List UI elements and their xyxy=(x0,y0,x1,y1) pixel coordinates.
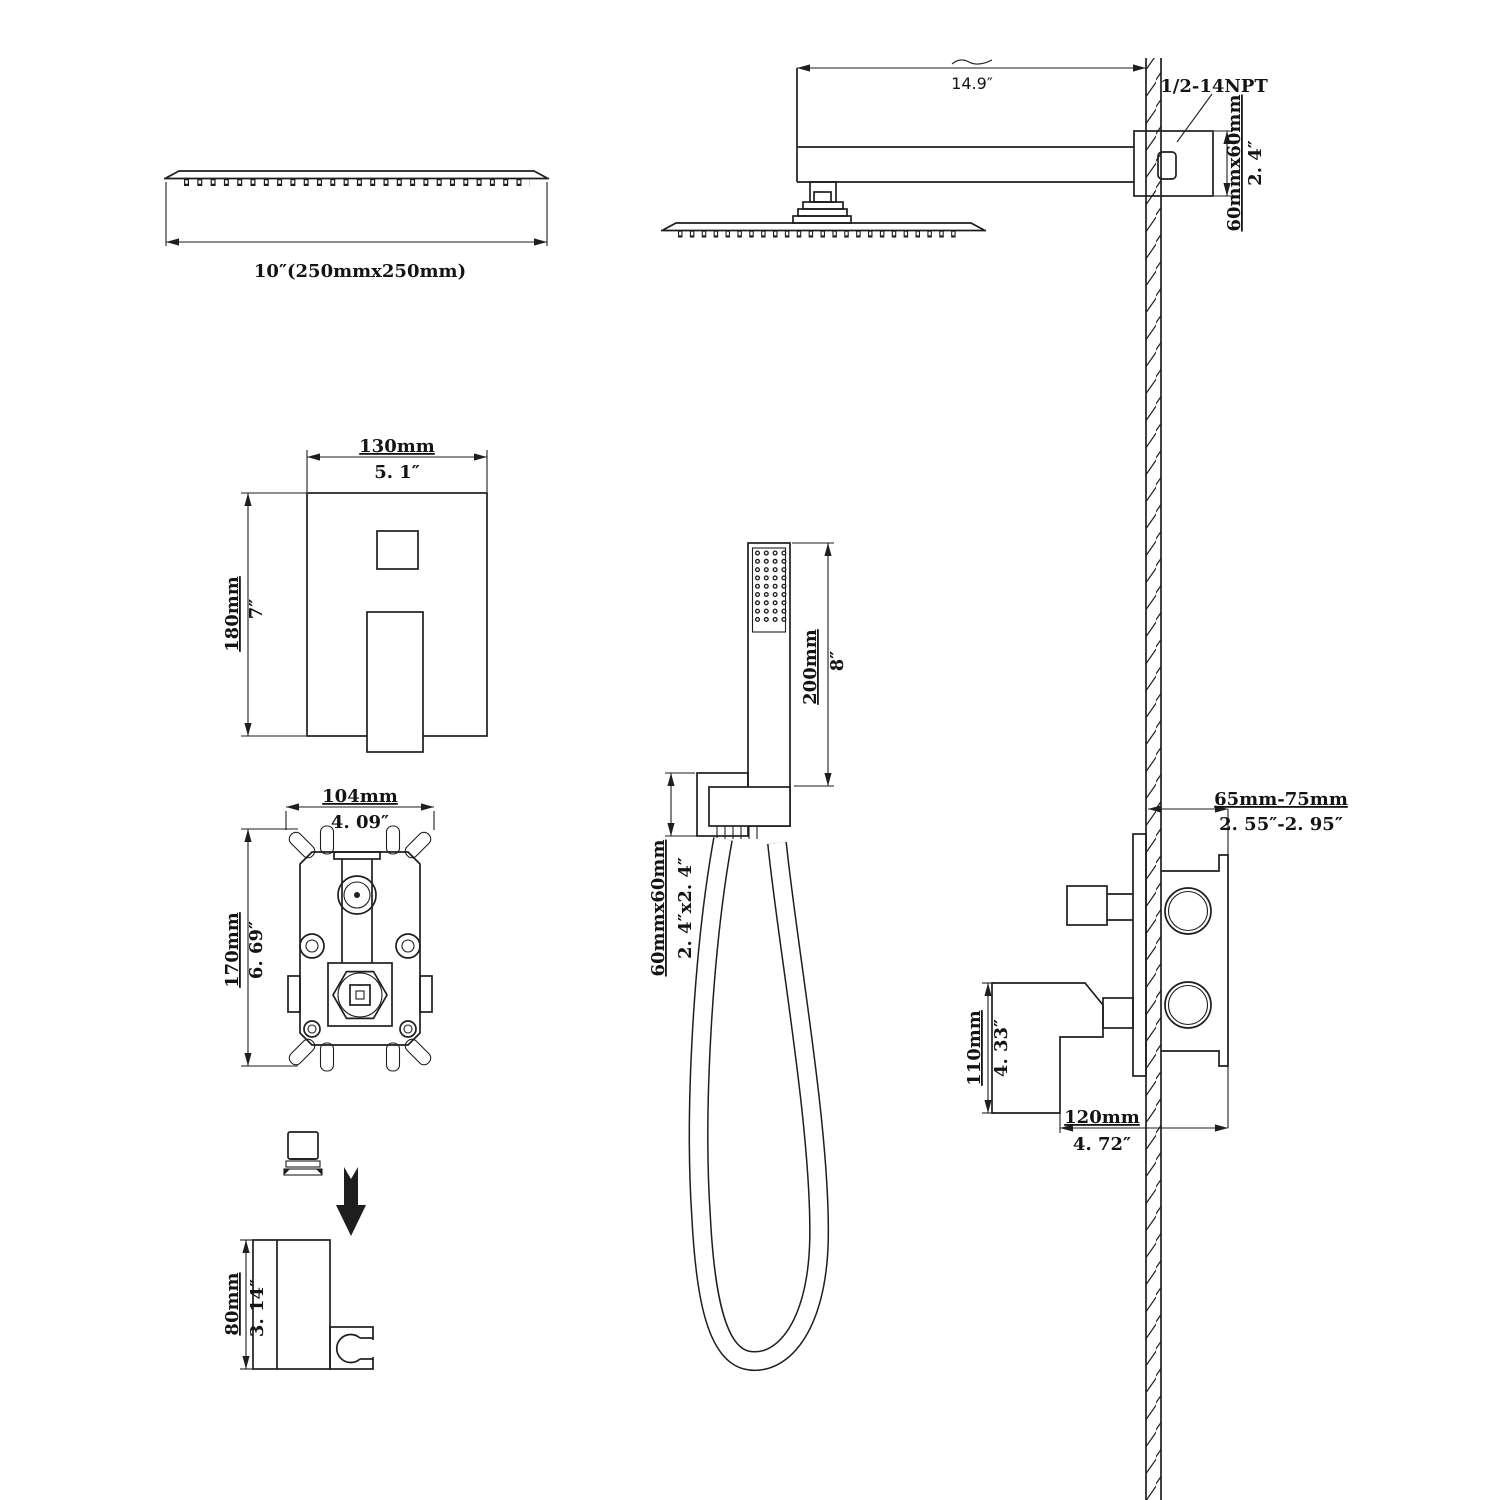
plate-width-in-label: 5. 1″ xyxy=(374,462,420,483)
shower-head-connector xyxy=(793,182,851,223)
holder-block xyxy=(709,787,790,826)
thread-leader-line xyxy=(1177,94,1212,142)
diverter-window xyxy=(377,531,418,569)
mounting-tab-br xyxy=(403,1037,433,1067)
flange-size-mm-label: 60mmx60mm xyxy=(1224,94,1245,231)
wand-length-in-label: 8″ xyxy=(827,651,848,672)
wand-nozzle-grid xyxy=(758,553,784,627)
wand-length-mm-label: 200mm xyxy=(800,629,821,705)
handle-depth-in-label: 4. 72″ xyxy=(1073,1134,1131,1155)
trim-plate-side xyxy=(1133,834,1146,1076)
plate-width-mm-label: 130mm xyxy=(359,436,435,457)
screw-hole-bottom-left xyxy=(304,1021,320,1037)
wall-depth-mm-label: 65mm-75mm xyxy=(1214,789,1348,810)
figure-trim-plate-front: 130mm 5. 1″ 180mm 7″ xyxy=(222,436,487,752)
valve-height-mm-label: 170mm xyxy=(222,912,243,988)
plug-ridge-1 xyxy=(286,1161,320,1167)
plug-ridge-2 xyxy=(284,1169,322,1175)
screw-hole-mid-right xyxy=(396,934,420,958)
valve-body-side-outline xyxy=(1161,855,1228,1066)
hose-plug-cap xyxy=(288,1132,318,1159)
valve-side-tab-right xyxy=(420,976,432,1012)
valve-top-collar xyxy=(334,852,380,859)
overwritten-text-mark xyxy=(952,60,992,64)
overhead-size-label: 10″(250mmx250mm) xyxy=(254,261,466,282)
bracket-height-mm-label: 80mm xyxy=(222,1272,243,1335)
port-top-outer xyxy=(1165,888,1211,934)
mounting-tab-tr xyxy=(403,830,433,860)
dimension-sheet: 10″(250mmx250mm) 14.9″ 1/2-14NPT 60mmx60… xyxy=(0,0,1500,1500)
shower-system-dimension-diagram: 10″(250mmx250mm) 14.9″ 1/2-14NPT 60mmx60… xyxy=(0,0,1500,1500)
shower-head-plate-top xyxy=(663,223,984,230)
mounting-tab-tl xyxy=(287,830,317,860)
figure-hand-shower: 200mm 8″ 60mmx60mm 2. 4″x2. 4″ xyxy=(648,543,848,1361)
wall-hatch xyxy=(1146,58,1161,1500)
mixer-handle-front xyxy=(367,612,423,752)
wall-section xyxy=(1146,58,1161,1500)
top-port-center xyxy=(354,892,360,898)
holder-size-mm-label: 60mmx60mm xyxy=(648,839,669,976)
hose-nut xyxy=(717,826,757,839)
valve-width-in-label: 4. 09″ xyxy=(331,812,389,833)
mounting-slot-bottom-right xyxy=(387,1043,400,1071)
handle-height-in-label: 4. 33″ xyxy=(991,1019,1012,1077)
valve-side-tab-left xyxy=(288,976,300,1012)
handle-height-mm-label: 110mm xyxy=(964,1010,985,1086)
diverter-knob-side xyxy=(1067,886,1107,925)
flange-size-in-label: 2. 4″ xyxy=(1245,140,1266,186)
port-bottom-outer xyxy=(1165,982,1211,1028)
insert-arrow-icon xyxy=(336,1167,366,1236)
valve-width-mm-label: 104mm xyxy=(322,786,398,807)
plate-height-in-label: 7″ xyxy=(246,599,267,620)
cartridge-hex-nut xyxy=(333,972,387,1019)
port-bottom-inner xyxy=(1169,986,1208,1025)
plug-ridge-mark-right xyxy=(316,1169,322,1175)
arm-length-label: 14.9″ xyxy=(951,74,993,93)
screw-hole-mid-left xyxy=(300,934,324,958)
figure-overhead-shower-top: 10″(250mmx250mm) xyxy=(164,171,549,282)
clip-opening-mask xyxy=(370,1340,378,1357)
figure-holder-bracket-detail: 80mm 3. 14″ xyxy=(222,1132,378,1369)
shower-plate-top-edge xyxy=(166,171,547,178)
screw-hole-bottom-right xyxy=(400,1021,416,1037)
mounting-tab-bl xyxy=(287,1037,317,1067)
thread-type-label: 1/2-14NPT xyxy=(1160,76,1268,97)
bracket-height-in-label: 3. 14″ xyxy=(247,1279,268,1337)
cartridge-square-stem xyxy=(350,985,370,1005)
valve-height-in-label: 6. 69″ xyxy=(246,921,267,979)
wall-depth-in-label: 2. 55″-2. 95″ xyxy=(1219,814,1343,835)
plug-ridge-mark-left xyxy=(284,1169,290,1175)
mounting-slot-bottom-left xyxy=(321,1043,334,1071)
figure-shower-arm-side: 14.9″ 1/2-14NPT 60mmx60mm 2. 4″ xyxy=(661,60,1268,234)
port-top-inner xyxy=(1169,892,1208,931)
figure-rough-in-valve: 104mm 4. 09″ 170mm 6. 69″ xyxy=(222,786,434,1071)
lever-stem xyxy=(1103,998,1133,1028)
plate-height-mm-label: 180mm xyxy=(222,576,243,652)
cartridge-circle xyxy=(338,973,382,1017)
handle-depth-mm-label: 120mm xyxy=(1064,1107,1140,1128)
holder-size-in-label: 2. 4″x2. 4″ xyxy=(675,857,696,959)
clip-c-ring xyxy=(337,1335,360,1363)
